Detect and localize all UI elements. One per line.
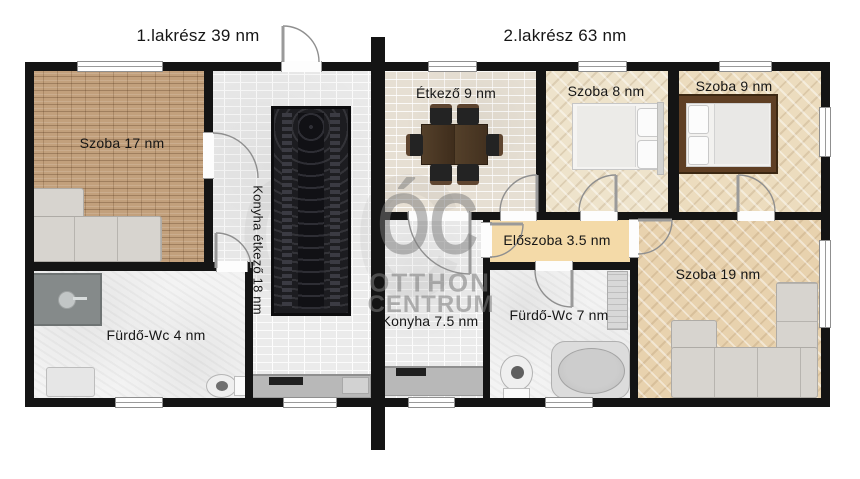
toilet-furdo7-drain [511,366,524,379]
shower-head-icon [58,291,76,309]
window-szoba8-top [578,61,627,72]
radiator [607,271,628,330]
kitchen2-cooktop [396,368,426,376]
room-label-szoba17: Szoba 17 nm [80,135,165,151]
bed-szoba9-pillow-2 [688,136,709,165]
door-entrance-unit1 [281,61,322,72]
dining-chair-left [406,134,423,156]
room-label-furdo4: Fürdő-Wc 4 nm [106,327,205,343]
unit2-label: 2.lakrész 63 nm [504,26,627,46]
window-konyha75-bottom [408,397,455,408]
door-szoba8 [580,211,618,221]
wall-szoba8-szoba9 [668,62,679,220]
dining-chair-right [486,134,503,156]
bed-szoba9-blanket [714,104,769,164]
room-label-szoba19: Szoba 19 nm [676,266,761,282]
bed-szoba9 [676,94,778,174]
bed-szoba8 [572,103,664,170]
window-furdo4-bottom [115,397,163,408]
shower-tray [32,273,102,326]
window-szoba19-right [819,240,831,328]
dining-chair-top-2 [457,104,479,125]
room-label-szoba9: Szoba 9 nm [696,78,773,94]
window-szoba17-top [77,61,163,72]
sofa-szoba19-bottom-seat [671,347,818,398]
wall-furdo4-top-a [25,262,216,271]
unit1-label: 1.lakrész 39 nm [137,26,260,46]
window-etkezo-top [428,61,477,72]
room-label-furdo7: Fürdő-Wc 7 nm [509,307,608,323]
room-label-etkezo: Étkező 9 nm [416,85,496,101]
rug-band-left [282,113,292,309]
door-konyha-eloszoba [481,222,492,258]
toilet-furdo4-drain [216,381,228,391]
wall-mid-c [537,212,580,220]
door-furdo7 [535,261,573,271]
toilet-furdo4-bowl [206,374,237,398]
dining-chair-top-1 [430,104,452,125]
door-szoba17 [203,132,214,179]
room-label-konyha75: Konyha 7.5 nm [382,313,479,329]
wall-furdo7-top-b [573,262,638,270]
door-szoba9 [737,211,775,221]
wall-furdo7-right [630,262,638,398]
room-label-eloszoba: Előszoba 3.5 nm [503,232,610,248]
watermark-monogram: ÓC [377,176,477,275]
rug-band-right [330,113,340,309]
toilet-furdo7-bowl [500,355,533,391]
room-label-szoba8: Szoba 8 nm [568,83,645,99]
bed-szoba9-pillow-1 [688,105,709,134]
rug-center-panel [298,113,324,309]
sofa-szoba19-left-block [671,320,717,350]
room-label-konyha-etkezo: Konyha étkező 18 nm [251,185,266,315]
bathtub-basin [558,348,625,394]
floor-plan: ÓC [0,0,860,479]
wall-etkezo-right [536,62,546,220]
shower-arm [73,297,87,300]
kitchen1-sink-cabinet [342,377,369,394]
window-szoba9-top [719,61,772,72]
door-furdo4 [216,261,248,272]
washbasin [46,367,95,397]
window-konyha-etkezo-bottom [283,397,337,408]
window-furdo7-bottom [545,397,593,408]
door-etkezo-eloszoba [500,211,537,221]
sofa-szoba17-seat [31,216,162,262]
bathtub [551,341,630,399]
door-eloszoba-szoba19 [629,219,639,258]
wall-mid-e [775,212,830,220]
kitchen1-cooktop [269,377,303,385]
bed-szoba8-blanket [577,106,636,167]
window-szoba9-right [819,107,831,157]
kitchen-rug [271,106,351,316]
dining-table [421,124,488,165]
bed-szoba8-headboard [657,102,664,175]
wall-outer-left [25,62,34,407]
